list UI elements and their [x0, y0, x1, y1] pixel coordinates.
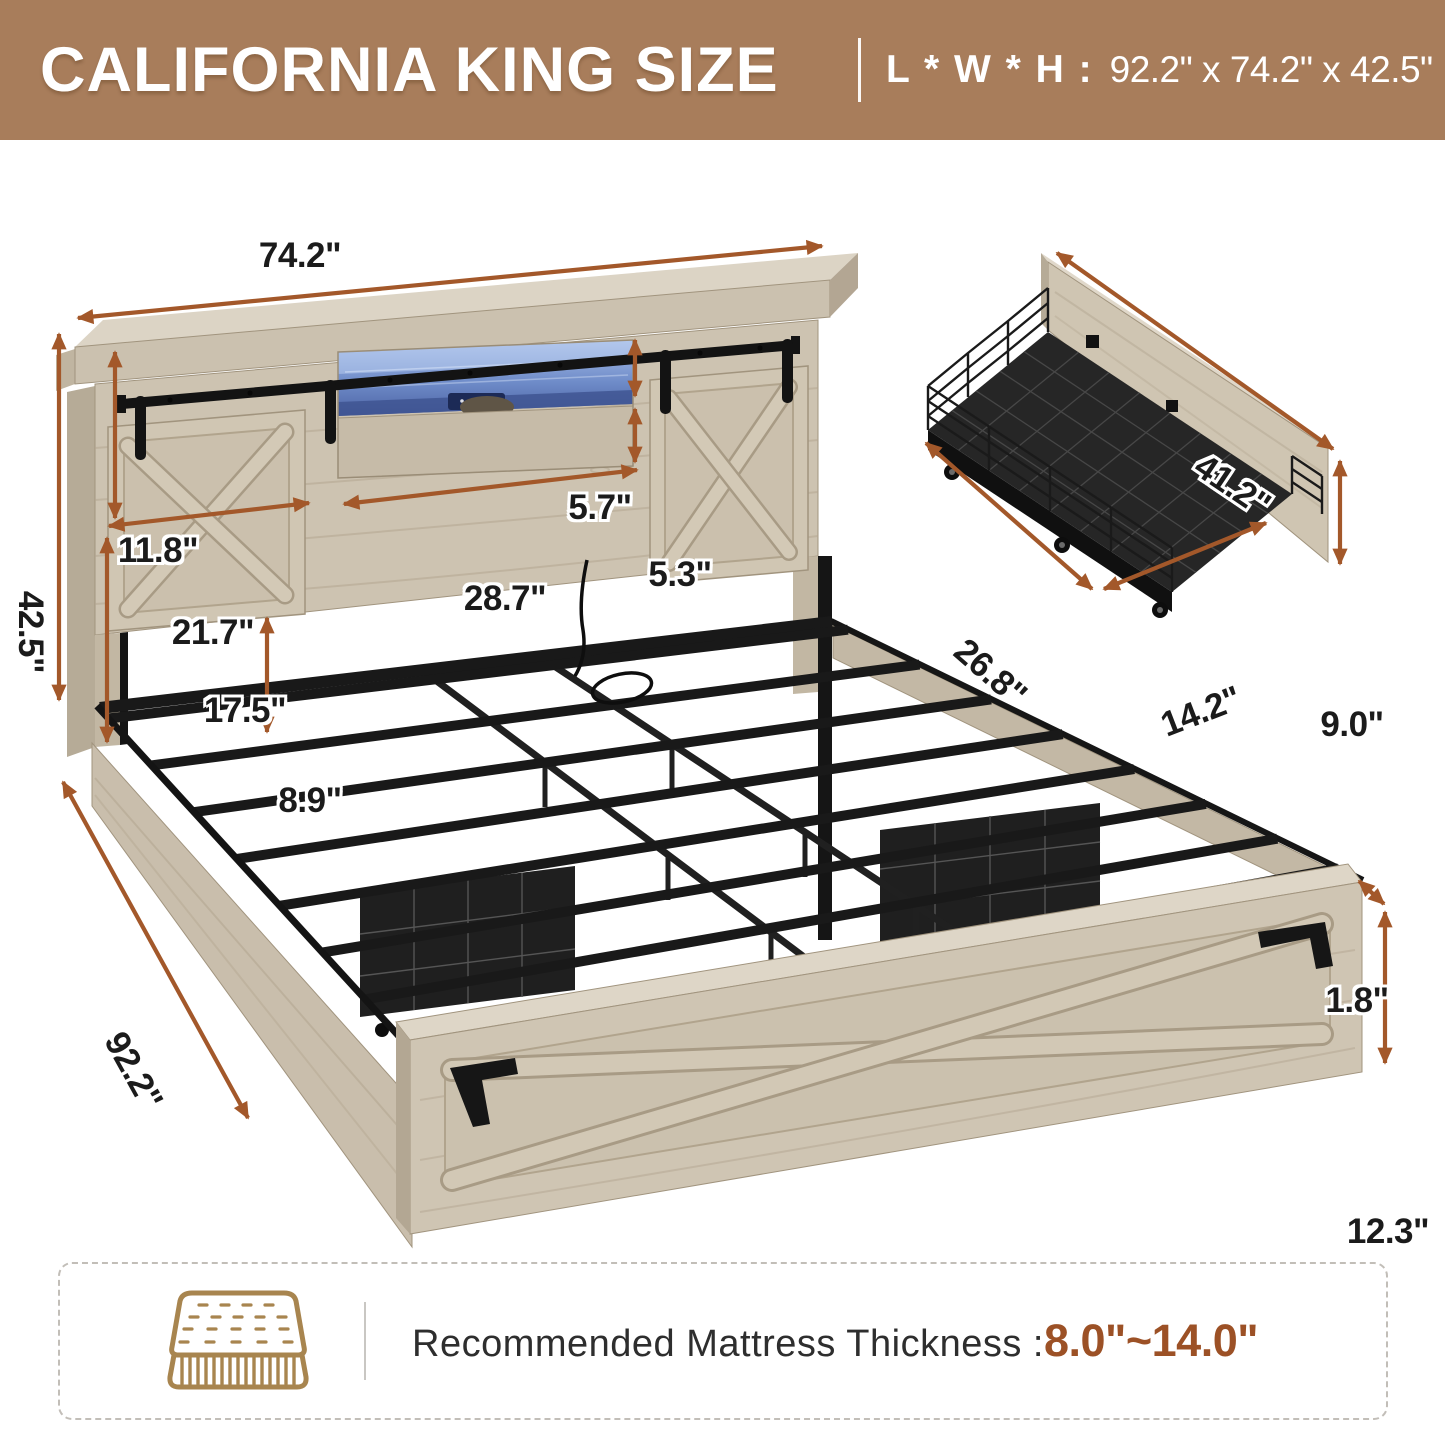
mattress-note-value: 8.0"~14.0": [1044, 1315, 1258, 1367]
dim-door-panel-height: 11.8": [118, 531, 198, 571]
dim-underbed-clearance: 8.9": [278, 781, 341, 821]
mattress-note-label: Recommended Mattress Thickness :: [412, 1323, 1044, 1366]
lwh-value: 92.2" x 74.2" x 42.5": [1110, 49, 1433, 91]
dim-shelf-opening-height: 5.7": [568, 488, 631, 528]
note-divider: [364, 1302, 366, 1380]
dim-drawer-front-height: 5.3": [648, 555, 711, 595]
dim-headboard-lower-height: 17.5": [204, 691, 286, 731]
dim-door-panel-width: 21.7": [172, 613, 254, 653]
mattress-icon: [158, 1285, 318, 1397]
dim-shelf-opening-width: 28.7": [464, 579, 546, 619]
underbed-drawer-inset: [928, 253, 1328, 618]
product-dimension-sheet: CALIFORNIA KING SIZE L * W * H : 92.2" x…: [0, 0, 1445, 1445]
dim-footboard-lip: 1.8": [1325, 981, 1388, 1021]
dim-footboard-height: 12.3": [1347, 1212, 1429, 1252]
header-banner: CALIFORNIA KING SIZE L * W * H : 92.2" x…: [0, 0, 1445, 140]
lwh-spec: L * W * H : 92.2" x 74.2" x 42.5": [886, 48, 1433, 92]
dim-headboard-width: 74.2": [259, 236, 341, 276]
lwh-label: L * W * H :: [886, 48, 1094, 92]
dim-inset-panel-height: 9.0": [1320, 705, 1383, 745]
panel-bracket: [1166, 400, 1178, 412]
mattress-note-box: Recommended Mattress Thickness : 8.0"~14…: [58, 1262, 1388, 1420]
panel-bracket: [1086, 335, 1099, 348]
dim-total-height: 42.5": [10, 591, 50, 673]
header-divider: [858, 38, 861, 102]
size-title: CALIFORNIA KING SIZE: [40, 34, 779, 106]
mattress-note: Recommended Mattress Thickness : 8.0"~14…: [412, 1315, 1258, 1367]
